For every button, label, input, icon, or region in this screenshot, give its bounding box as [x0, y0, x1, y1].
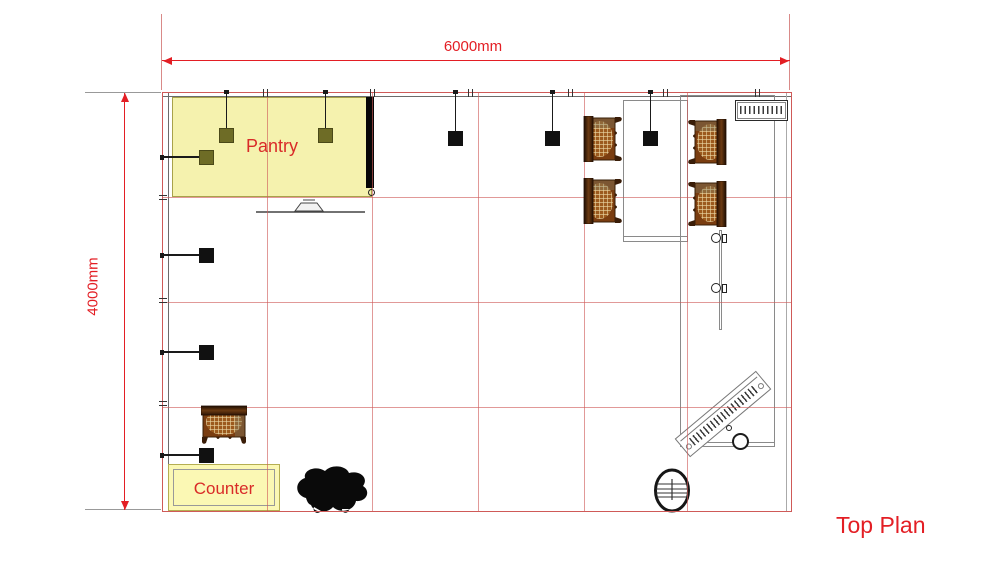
wall-light-stem [162, 254, 200, 256]
wall-light-mount-icon [160, 350, 164, 355]
wall-light [199, 248, 214, 263]
wall-light-stem [162, 351, 200, 353]
floor-plan-canvas: 6000mm 4000mm Pantry [0, 0, 1000, 563]
pendant-light-mount-icon [453, 90, 458, 94]
wall-tick-icon [159, 405, 167, 406]
pendant-light-stem [226, 92, 228, 128]
pendant-light-stem [552, 92, 554, 131]
rail-hook-latch-icon [722, 284, 727, 293]
dim-top-extension-right [789, 14, 790, 90]
pendant-light [448, 131, 463, 146]
dim-top-extension-left [161, 14, 162, 90]
wall-tick-icon [159, 401, 167, 402]
wicker-chair [687, 119, 727, 165]
wall-tick-icon [759, 89, 760, 97]
wicker-chair [687, 181, 727, 227]
dim-left-line [124, 93, 125, 510]
wall-light-mount-icon [160, 453, 164, 458]
wall-tick-icon [468, 89, 469, 97]
rail-hook-icon [711, 283, 721, 293]
wall-tick-icon [374, 89, 375, 97]
wall-tick-icon [159, 199, 167, 200]
dim-left-label: 4000mm [85, 237, 102, 337]
wall-tick-icon [572, 89, 573, 97]
wall-tick-icon [755, 89, 756, 97]
wall-light-mount-icon [160, 155, 164, 160]
pendant-light [318, 128, 333, 143]
dim-left-arrow-bottom-icon [121, 501, 129, 510]
wall-tick-icon [370, 89, 371, 97]
rail-hook-latch-icon [722, 234, 727, 243]
dim-top-line [162, 60, 790, 61]
wall-light [199, 345, 214, 360]
wall-tick-icon [159, 302, 167, 303]
wall-tick-icon [267, 89, 268, 97]
pendant-light [545, 131, 560, 146]
wall-light-stem [162, 454, 200, 456]
dim-top-arrow-left-icon [163, 57, 172, 65]
pendant-light [219, 128, 234, 143]
wicker-chair [201, 405, 247, 445]
wall-tick-icon [568, 89, 569, 97]
wall-light-stem [162, 156, 200, 158]
wicker-chair [583, 116, 623, 162]
pendant-light-stem [325, 92, 327, 128]
rail-hook-icon [711, 233, 721, 243]
wall-light-mount-icon [160, 253, 164, 258]
pendant-light-stem [650, 92, 652, 131]
dim-top-arrow-right-icon [780, 57, 789, 65]
wicker-chair [583, 178, 623, 224]
wall-tick-icon [159, 298, 167, 299]
pendant-light [643, 131, 658, 146]
page-title: Top Plan [836, 512, 966, 539]
wall-tick-icon [472, 89, 473, 97]
dim-left-arrow-top-icon [121, 93, 129, 102]
wall-tick-icon [263, 89, 264, 97]
wall-tick-icon [667, 89, 668, 97]
pendant-light-stem [455, 92, 457, 131]
wall-tick-icon [159, 195, 167, 196]
pendant-light-mount-icon [323, 90, 328, 94]
pendant-light-mount-icon [550, 90, 555, 94]
pendant-light-mount-icon [224, 90, 229, 94]
wall-tick-icon [663, 89, 664, 97]
dim-top-label: 6000mm [423, 38, 523, 55]
pendant-light-mount-icon [648, 90, 653, 94]
wall-light [199, 150, 214, 165]
wall-light [199, 448, 214, 463]
